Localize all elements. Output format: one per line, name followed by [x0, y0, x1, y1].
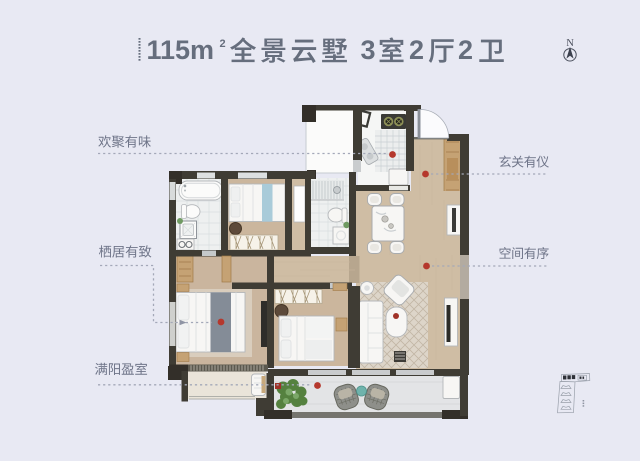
svg-text:3: 3 — [361, 35, 376, 65]
svg-text:2: 2 — [220, 38, 226, 50]
svg-text:2: 2 — [458, 35, 473, 65]
svg-text:115m: 115m — [147, 35, 215, 65]
svg-text:2: 2 — [409, 35, 424, 65]
